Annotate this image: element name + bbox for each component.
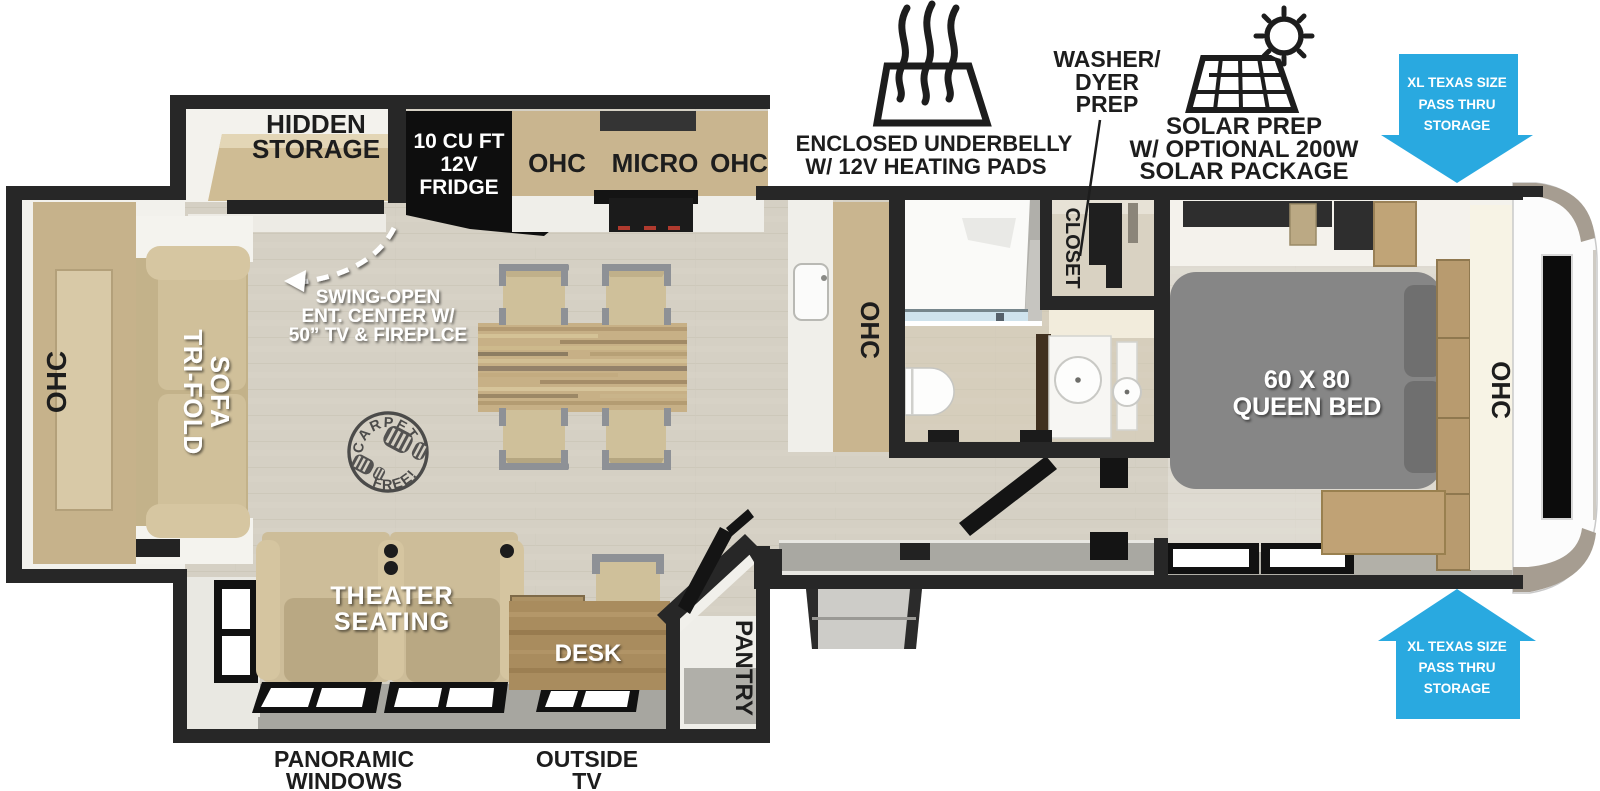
svg-text:50” TV & FIREPLCE: 50” TV & FIREPLCE	[289, 325, 467, 346]
svg-text:W/ 12V HEATING PADS: W/ 12V HEATING PADS	[805, 154, 1046, 179]
svg-text:OHC: OHC	[41, 351, 72, 413]
svg-text:QUEEN BED: QUEEN BED	[1233, 393, 1382, 421]
svg-text:OHC: OHC	[855, 301, 885, 359]
svg-text:SEATING: SEATING	[334, 608, 450, 636]
svg-text:PANTRY: PANTRY	[730, 620, 757, 716]
svg-text:10 CU FT: 10 CU FT	[413, 130, 504, 153]
svg-text:STORAGE: STORAGE	[1424, 118, 1491, 133]
svg-text:DESK: DESK	[555, 640, 622, 667]
svg-text:OHC: OHC	[528, 148, 586, 178]
svg-text:SOFA: SOFA	[205, 356, 235, 429]
svg-text:PASS THRU: PASS THRU	[1418, 97, 1495, 112]
svg-text:SOLAR PACKAGE: SOLAR PACKAGE	[1140, 158, 1349, 185]
svg-text:CLOSET: CLOSET	[1061, 207, 1083, 288]
svg-text:PREP: PREP	[1076, 91, 1139, 117]
svg-text:SWING-OPEN: SWING-OPEN	[316, 287, 441, 308]
svg-text:TV: TV	[572, 768, 602, 791]
svg-text:THEATER: THEATER	[330, 582, 453, 610]
svg-text:ENCLOSED UNDERBELLY: ENCLOSED UNDERBELLY	[796, 131, 1073, 156]
svg-text:XL TEXAS SIZE: XL TEXAS SIZE	[1407, 75, 1507, 90]
svg-text:PASS THRU: PASS THRU	[1418, 660, 1495, 675]
svg-text:OHC: OHC	[710, 148, 768, 178]
svg-text:12V: 12V	[440, 153, 477, 176]
svg-text:TRI-FOLD: TRI-FOLD	[178, 329, 208, 454]
svg-text:60 X 80: 60 X 80	[1264, 366, 1350, 394]
svg-text:FRIDGE: FRIDGE	[419, 176, 498, 199]
svg-text:STORAGE: STORAGE	[1424, 681, 1491, 696]
svg-text:OHC: OHC	[1486, 361, 1516, 419]
svg-text:XL TEXAS SIZE: XL TEXAS SIZE	[1407, 639, 1507, 654]
svg-text:MICRO: MICRO	[612, 148, 699, 178]
svg-text:STORAGE: STORAGE	[252, 134, 380, 164]
svg-text:WINDOWS: WINDOWS	[286, 768, 402, 791]
svg-text:ENT. CENTER W/: ENT. CENTER W/	[301, 306, 455, 327]
